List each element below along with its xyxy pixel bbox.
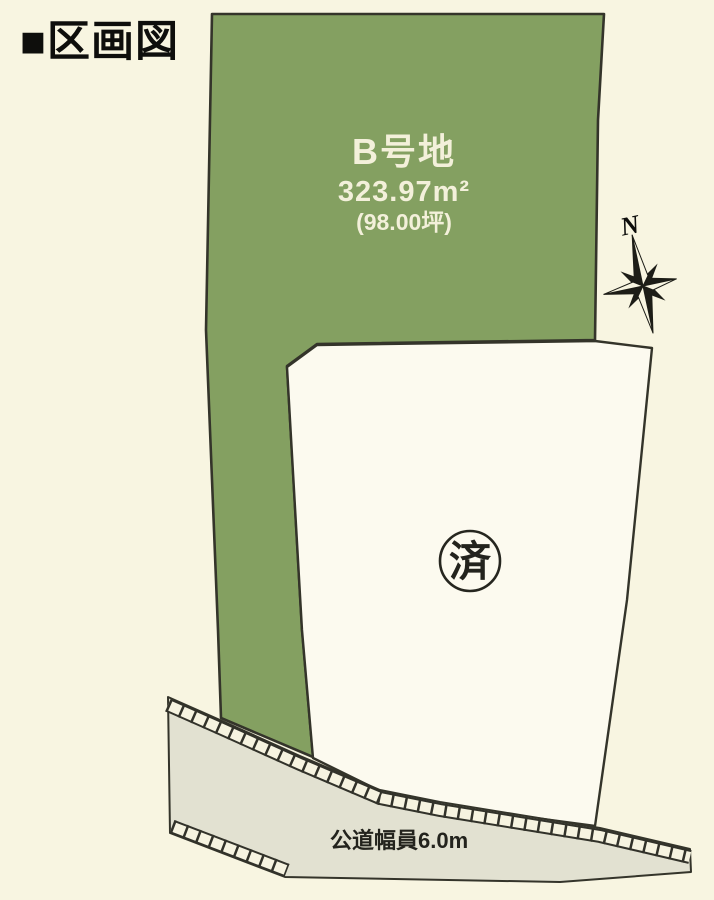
- lot-b-area-tsubo-label: (98.00坪): [356, 209, 452, 235]
- page-title: ■区画図: [20, 18, 179, 66]
- lot-b-name-label: B号地: [352, 131, 456, 172]
- lot-b-area-sqm-label: 323.97m²: [338, 176, 470, 208]
- lot-b-labels: B号地 323.97m² (98.00坪): [338, 131, 470, 235]
- sold-stamp: 済: [440, 531, 500, 591]
- sold-stamp-label: 済: [449, 538, 492, 585]
- road-width-label: 公道幅員6.0m: [330, 828, 468, 853]
- lot-map-canvas: ■区画図 B号地 323.97m² (98.00坪) 済 公道幅員6.0m: [0, 0, 714, 900]
- lot-map-page: ■区画図 B号地 323.97m² (98.00坪) 済 公道幅員6.0m: [0, 0, 714, 900]
